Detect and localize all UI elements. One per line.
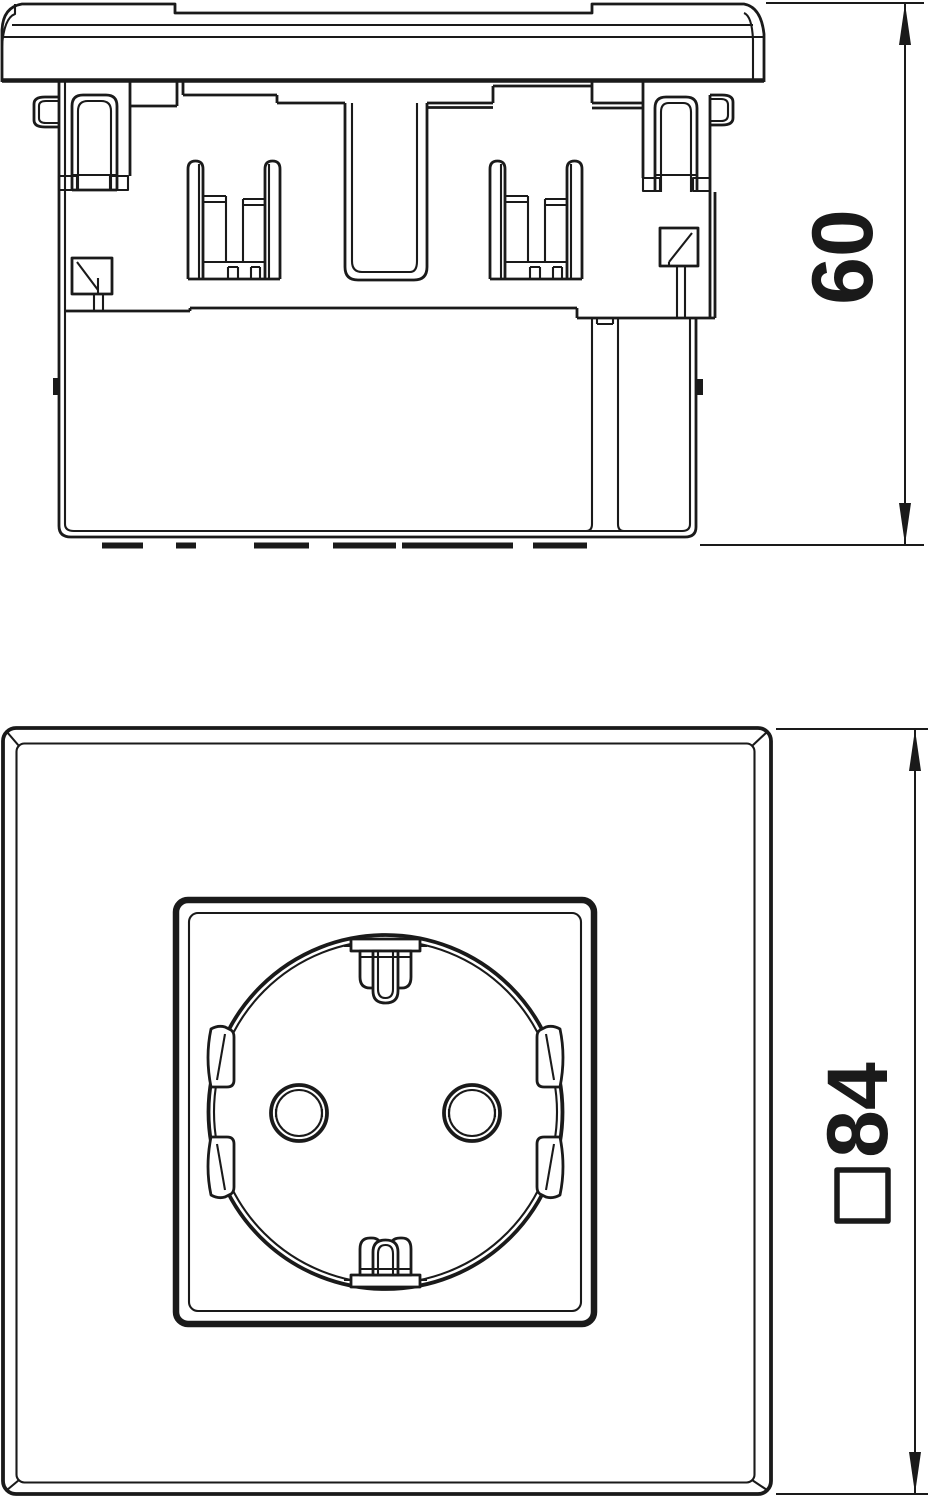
- cover-plate-bevel: [17, 744, 755, 1483]
- pin-hole-right: [444, 1085, 500, 1141]
- dimension-arrow-up-icon: [909, 730, 921, 772]
- left-claw-foot: [59, 176, 77, 190]
- flange-corner-right: [744, 13, 753, 82]
- right-contact-fork: [490, 161, 582, 279]
- center-slot: [345, 103, 427, 280]
- divider-wall: [586, 318, 624, 531]
- dimension-arrow-up-icon: [899, 4, 911, 46]
- front-dimension: 84: [776, 729, 928, 1494]
- body-top-face: [130, 82, 643, 108]
- earth-clip-bottom: [344, 1238, 427, 1287]
- earth-clip-top: [344, 939, 427, 1003]
- cover-plate: [3, 728, 771, 1494]
- plate-corner-bevels: [7, 732, 767, 1490]
- left-claw-foot: [110, 176, 128, 190]
- square-symbol-icon: [837, 1170, 888, 1221]
- right-claw-foot: [693, 178, 710, 191]
- right-claw-foot: [643, 178, 660, 191]
- dimension-84-label: 84: [810, 1062, 906, 1158]
- left-claw: [59, 82, 130, 190]
- front-view: [3, 728, 771, 1494]
- right-side-tick: [696, 379, 703, 395]
- flange: [2, 4, 764, 82]
- technical-drawing-page: 60: [0, 0, 933, 1500]
- body-step-line: [66, 308, 715, 318]
- left-hook: [72, 258, 112, 311]
- body-outline: [59, 82, 696, 537]
- left-side-tick: [53, 378, 59, 395]
- dimension-arrow-down-icon: [909, 1452, 921, 1494]
- technical-drawing: 60: [0, 0, 933, 1500]
- right-claw: [643, 82, 715, 318]
- left-contact-fork: [188, 161, 280, 279]
- dimension-60-label: 60: [795, 209, 891, 305]
- guide-notches: [208, 1026, 563, 1197]
- body-inner-wall: [65, 82, 690, 531]
- dimension-arrow-down-icon: [899, 503, 911, 545]
- side-view: [2, 4, 764, 546]
- flange-outline: [2, 4, 764, 82]
- side-dimension: 60: [700, 3, 924, 545]
- right-latch-bump: [710, 95, 733, 125]
- right-hook: [660, 228, 698, 318]
- left-latch-bump: [34, 97, 59, 127]
- pin-hole-left: [271, 1085, 327, 1141]
